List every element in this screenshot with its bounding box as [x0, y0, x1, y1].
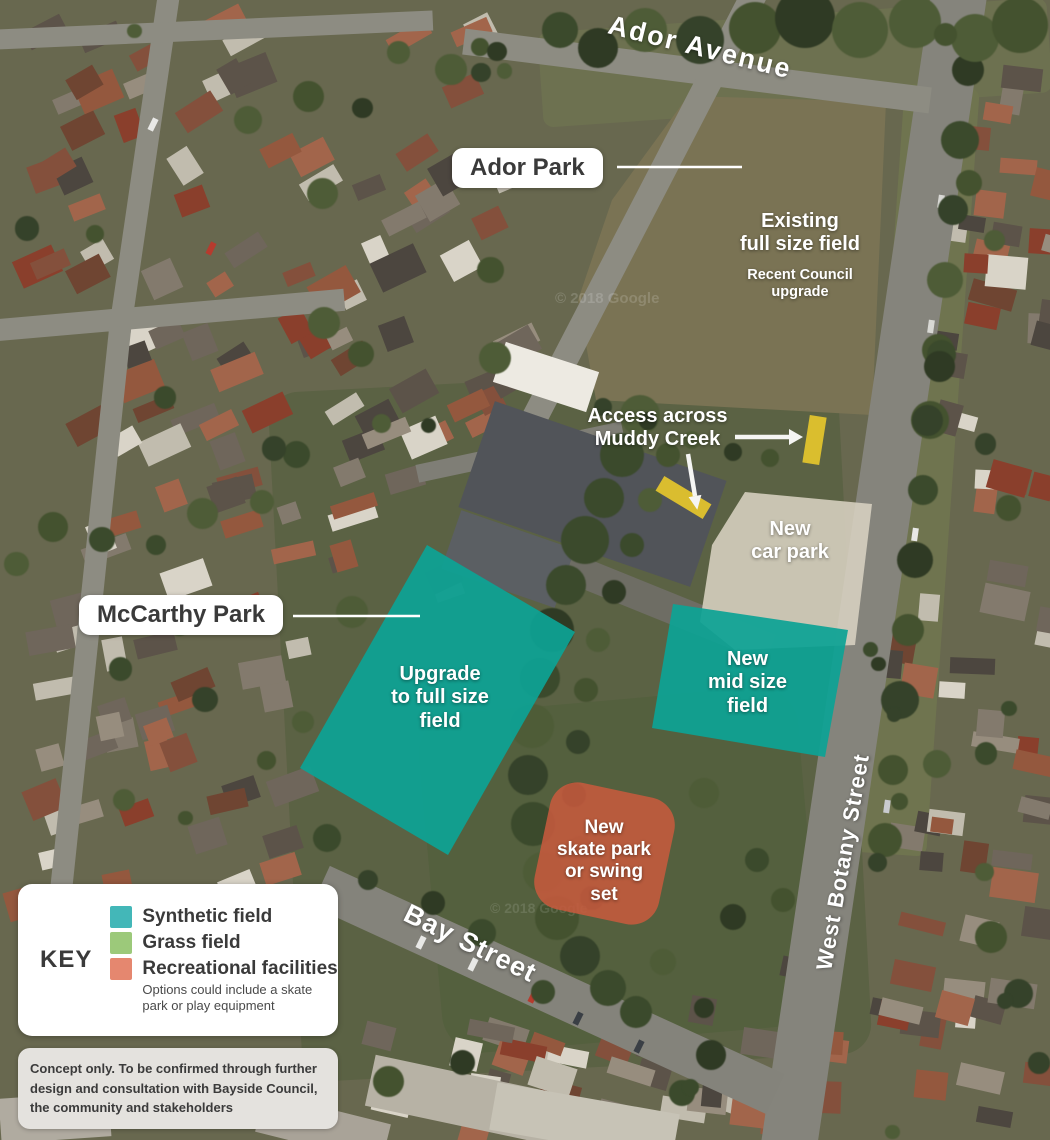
- tree: [308, 307, 340, 339]
- house-roof: [155, 479, 188, 513]
- grass-field-swatch: [110, 932, 132, 954]
- tree: [887, 707, 902, 722]
- tree: [127, 24, 142, 39]
- tree: [387, 41, 409, 63]
- car-park-label: New car park: [710, 518, 870, 565]
- house-roof: [976, 709, 1005, 738]
- house-roof: [60, 110, 105, 150]
- house-roof: [938, 681, 965, 699]
- car: [205, 241, 216, 255]
- house-roof: [181, 323, 218, 362]
- house-roof: [378, 316, 414, 352]
- tree: [720, 904, 746, 930]
- house-roof: [898, 912, 946, 937]
- house-roof: [141, 258, 183, 300]
- tree: [878, 755, 908, 785]
- access-label: Access across Muddy Creek: [555, 405, 760, 452]
- key-item-label: Recreational facilities: [142, 958, 337, 980]
- house-roof: [917, 593, 939, 622]
- tree: [38, 512, 68, 542]
- tree: [771, 888, 795, 912]
- tree: [584, 478, 624, 518]
- tree: [313, 824, 341, 852]
- house-roof: [173, 184, 209, 217]
- tree: [927, 262, 963, 298]
- tree: [561, 516, 609, 564]
- tree: [471, 38, 489, 56]
- tree: [1028, 1052, 1049, 1073]
- tree: [761, 449, 779, 467]
- tree: [602, 580, 626, 604]
- tree: [373, 1066, 404, 1097]
- house-roof: [989, 866, 1039, 902]
- tree: [497, 63, 512, 78]
- house-roof: [96, 712, 125, 741]
- tree: [832, 2, 888, 58]
- park-label-mccarthy-park: McCarthy Park: [79, 595, 283, 635]
- tree: [292, 711, 314, 733]
- house-roof: [137, 424, 190, 467]
- tree: [146, 535, 166, 555]
- synthetic-field-swatch: [110, 906, 132, 928]
- house-roof: [1029, 471, 1050, 500]
- mid-field-label: New mid size field: [660, 648, 835, 718]
- map-key: KEY Synthetic field Grass field Recreati…: [18, 884, 338, 1036]
- disclaimer-note: Concept only. To be confirmed through fu…: [18, 1048, 338, 1129]
- house-roof: [35, 743, 64, 772]
- tree: [435, 54, 467, 86]
- house-roof: [973, 190, 1006, 220]
- house-roof: [983, 102, 1014, 125]
- tree: [892, 614, 924, 646]
- tree: [283, 441, 310, 468]
- tree: [192, 687, 217, 712]
- house-roof: [188, 817, 229, 854]
- tree: [348, 341, 374, 367]
- house-roof: [206, 788, 248, 815]
- key-item-label: Synthetic field: [142, 906, 272, 928]
- tree: [546, 565, 586, 605]
- tree: [620, 533, 644, 557]
- tree: [941, 121, 979, 159]
- tree: [868, 853, 887, 872]
- house-roof: [225, 232, 268, 269]
- upgrade-field-label: Upgrade to full size field: [340, 663, 540, 733]
- tree: [975, 863, 993, 881]
- tree: [1001, 701, 1017, 717]
- house-roof: [949, 657, 995, 674]
- tree: [574, 678, 598, 702]
- tree: [234, 106, 262, 134]
- key-item-grass: Grass field: [110, 932, 337, 954]
- tree: [975, 921, 1007, 953]
- house-roof: [68, 193, 106, 222]
- house-roof: [206, 272, 233, 298]
- tree: [871, 657, 886, 672]
- house-roof: [956, 1063, 1005, 1095]
- house-roof: [471, 206, 509, 241]
- house-roof: [930, 816, 954, 834]
- house-roof: [1021, 906, 1050, 940]
- tree: [938, 195, 968, 225]
- tree: [508, 755, 548, 795]
- existing-field-label: Existing full size field: [690, 210, 910, 257]
- tree: [154, 386, 177, 409]
- house-roof: [973, 485, 997, 514]
- industrial-roof: [489, 1082, 680, 1140]
- key-items: Synthetic field Grass field Recreational…: [110, 902, 337, 1019]
- imagery-watermark: © 2018 Google: [555, 290, 659, 307]
- tree: [908, 475, 938, 505]
- house-roof: [976, 1106, 1014, 1128]
- concept-map: © 2018 Google © 2018 Google Ador Avenue …: [0, 0, 1050, 1140]
- tree: [923, 750, 951, 778]
- tree: [4, 552, 28, 576]
- tree: [975, 433, 996, 454]
- tree: [620, 996, 652, 1028]
- tree: [250, 490, 274, 514]
- tree: [262, 436, 286, 460]
- tree: [560, 936, 600, 976]
- house-roof: [1012, 749, 1050, 779]
- tree: [471, 63, 491, 83]
- house-roof: [25, 624, 76, 656]
- house-roof: [220, 510, 264, 540]
- key-item-note: Options could include a skate park or pl…: [142, 982, 337, 1015]
- tree: [89, 527, 114, 552]
- tree: [997, 993, 1013, 1009]
- house-roof: [1036, 606, 1050, 634]
- tree: [891, 793, 908, 810]
- tree: [178, 811, 193, 826]
- house-roof: [979, 583, 1030, 622]
- existing-field-note: Recent Council upgrade: [690, 267, 910, 301]
- house-roof: [920, 851, 945, 872]
- tree: [336, 596, 368, 628]
- house-roof: [440, 240, 483, 282]
- tree: [689, 778, 719, 808]
- tree: [257, 751, 276, 770]
- tree: [293, 81, 324, 112]
- tree: [745, 848, 769, 872]
- park-label-ador-park: Ador Park: [452, 148, 603, 188]
- key-item-synthetic: Synthetic field: [110, 906, 337, 928]
- key-item-label: Grass field: [142, 932, 240, 954]
- tree: [650, 949, 676, 975]
- tree: [187, 498, 218, 529]
- tree: [477, 257, 503, 283]
- recreation-label: New skate park or swing set: [534, 817, 674, 906]
- key-item-recreational: Recreational facilities Options could in…: [110, 958, 337, 1015]
- tree: [487, 42, 506, 61]
- tree: [885, 1125, 900, 1140]
- house-roof: [890, 959, 936, 992]
- tree: [696, 1040, 726, 1070]
- tree: [586, 628, 610, 652]
- key-title: KEY: [18, 946, 110, 974]
- tree: [996, 495, 1022, 521]
- house-roof: [984, 255, 1028, 290]
- tree: [924, 351, 955, 382]
- tree: [307, 178, 338, 209]
- tree: [590, 970, 626, 1006]
- house-roof: [210, 432, 246, 470]
- tree: [352, 98, 373, 119]
- house-roof: [963, 253, 989, 274]
- house-roof: [167, 146, 204, 185]
- tree: [975, 742, 998, 765]
- house-roof: [1000, 157, 1038, 175]
- tree: [868, 823, 902, 857]
- house-roof: [986, 559, 1028, 587]
- tree: [15, 216, 39, 240]
- tree: [566, 730, 590, 754]
- recreational-swatch: [110, 958, 132, 980]
- tree: [897, 542, 933, 578]
- tree: [109, 657, 133, 681]
- house-roof: [352, 174, 386, 201]
- house-roof: [913, 1070, 948, 1102]
